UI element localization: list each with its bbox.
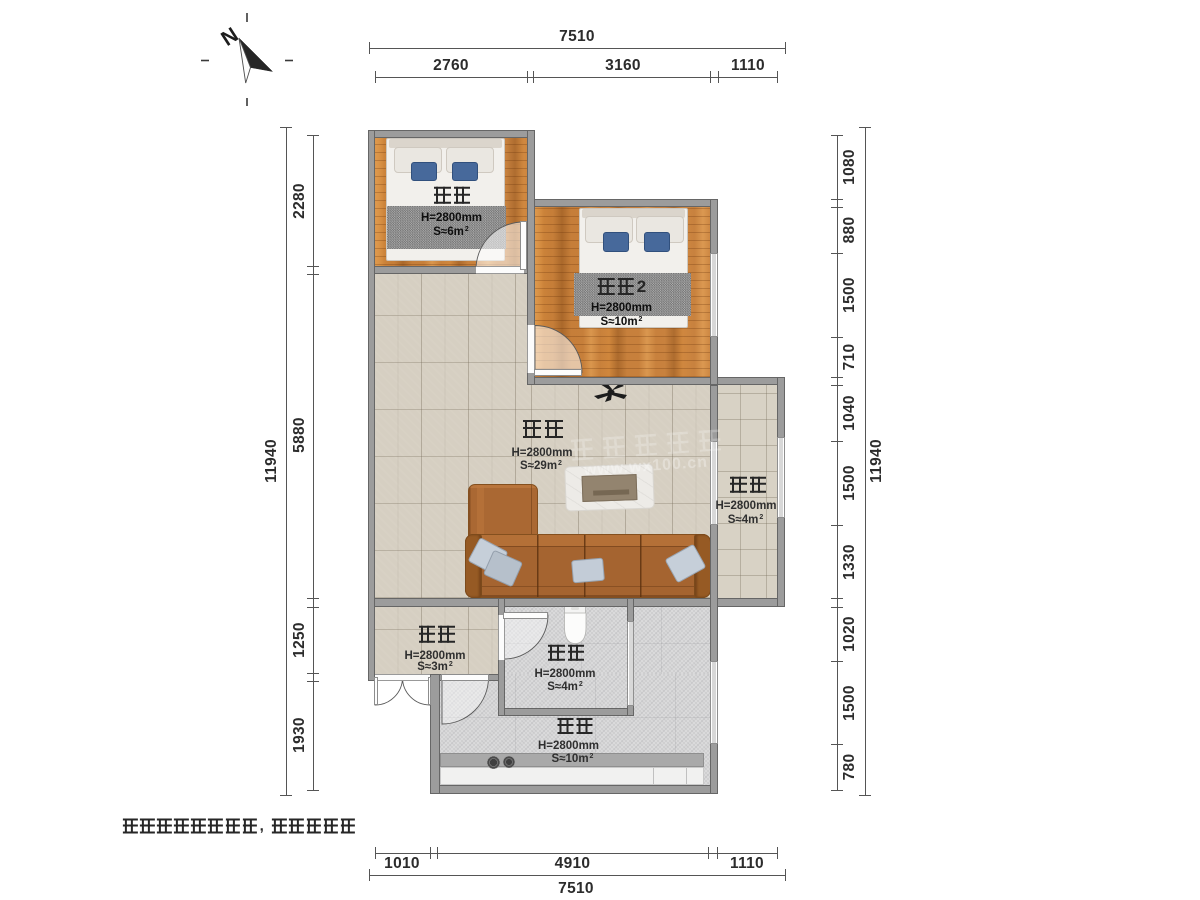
svg-text:N: N bbox=[217, 23, 242, 51]
